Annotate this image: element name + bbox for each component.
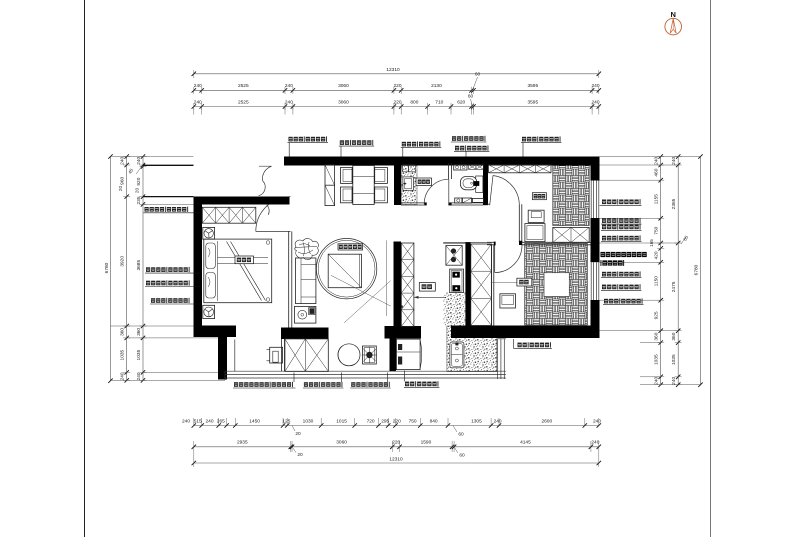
svg-text:360: 360 [120,328,126,336]
svg-text:2365: 2365 [671,198,677,209]
svg-text:1305: 1305 [471,418,482,424]
svg-text:840: 840 [430,418,438,424]
svg-text:240: 240 [591,99,599,105]
svg-text:240: 240 [136,156,142,164]
svg-text:240: 240 [671,376,677,384]
svg-text:265: 265 [217,418,225,424]
svg-text:925: 925 [654,311,660,319]
svg-text:20: 20 [118,186,123,192]
svg-text:240: 240 [285,99,293,105]
svg-text:220: 220 [393,418,401,424]
svg-text:2600: 2600 [541,418,552,424]
svg-text:2475: 2475 [671,281,677,292]
svg-text:60: 60 [458,431,464,437]
svg-text:3060: 3060 [338,99,349,105]
svg-text:6780: 6780 [694,264,700,275]
svg-text:240: 240 [205,418,213,424]
svg-text:2935: 2935 [237,440,248,446]
svg-text:240: 240 [654,376,660,384]
svg-text:2130: 2130 [431,83,442,89]
svg-text:800: 800 [410,99,418,105]
svg-text:20: 20 [134,188,139,194]
svg-text:240: 240 [494,418,502,424]
svg-text:240: 240 [194,83,202,89]
svg-text:12310: 12310 [389,456,403,462]
svg-text:N: N [670,10,675,19]
svg-text:360: 360 [671,332,677,340]
svg-text:1035: 1035 [654,354,660,365]
svg-text:240: 240 [182,418,190,424]
svg-text:6780: 6780 [104,262,110,273]
svg-text:1035: 1035 [671,354,677,365]
svg-text:750: 750 [654,226,660,234]
svg-text:750: 750 [409,418,417,424]
svg-text:240: 240 [120,372,126,380]
svg-text:60: 60 [468,94,474,100]
svg-text:220: 220 [393,83,401,89]
svg-text:3060: 3060 [336,440,347,446]
svg-text:3685: 3685 [136,260,142,271]
svg-text:20: 20 [297,452,303,458]
svg-text:360: 360 [136,328,142,336]
svg-text:1450: 1450 [249,418,260,424]
svg-text:220: 220 [392,440,400,446]
svg-text:620: 620 [457,99,465,105]
svg-text:240: 240 [591,440,599,446]
svg-text:240: 240 [654,156,660,164]
svg-text:240: 240 [593,418,601,424]
svg-text:3920: 3920 [120,256,126,267]
svg-text:1015: 1015 [336,418,347,424]
svg-text:295: 295 [381,418,389,424]
svg-text:60: 60 [459,453,465,459]
svg-text:4145: 4145 [520,440,531,446]
svg-text:960: 960 [120,176,126,184]
svg-text:3595: 3595 [527,83,538,89]
svg-text:460: 460 [654,168,660,176]
svg-text:1150: 1150 [654,276,660,287]
svg-text:1035: 1035 [120,349,126,360]
svg-text:240: 240 [591,83,599,89]
svg-text:220: 220 [393,99,401,105]
svg-text:20: 20 [295,431,301,437]
svg-text:60: 60 [475,72,481,78]
svg-text:1590: 1590 [421,440,432,446]
svg-text:240: 240 [671,156,677,164]
svg-text:240: 240 [136,372,142,380]
svg-text:3595: 3595 [527,99,538,105]
svg-text:125: 125 [282,418,290,424]
svg-text:240: 240 [120,156,126,164]
svg-text:235: 235 [136,196,142,204]
svg-text:1030: 1030 [303,418,314,424]
svg-text:1035: 1035 [136,349,142,360]
svg-text:360: 360 [654,332,660,340]
svg-text:720: 720 [367,418,375,424]
svg-text:420: 420 [654,251,660,259]
svg-text:1155: 1155 [654,194,660,205]
svg-text:12310: 12310 [386,67,400,73]
svg-text:710: 710 [435,99,443,105]
svg-text:2525: 2525 [238,83,249,89]
svg-text:240: 240 [194,99,202,105]
svg-text:240: 240 [285,83,293,89]
svg-text:920: 920 [136,177,142,185]
svg-text:515: 515 [194,418,202,424]
svg-text:3060: 3060 [338,83,349,89]
svg-text:2525: 2525 [238,99,249,105]
